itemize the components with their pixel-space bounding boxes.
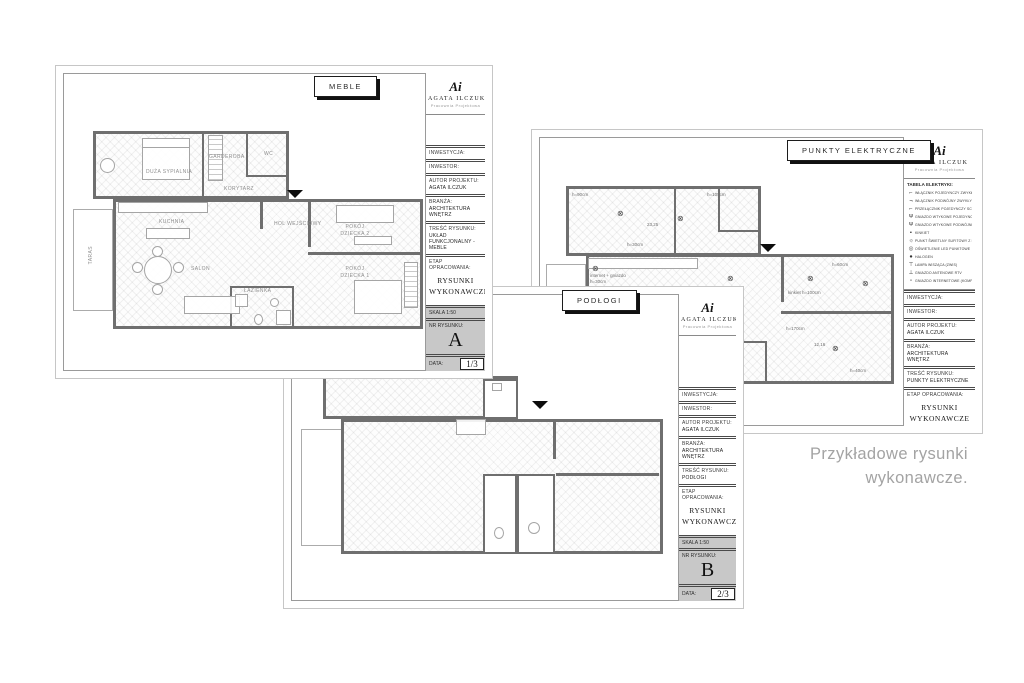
page-number: 2/3 bbox=[711, 588, 735, 600]
field-value: PODŁOGI bbox=[682, 475, 733, 481]
led-spot-icon: ◎ bbox=[907, 246, 915, 252]
room-label: KORYTARZ bbox=[224, 186, 254, 192]
chair-furniture bbox=[173, 262, 184, 273]
field-value: UKŁAD FUNKCJONALNY - MEBLE bbox=[429, 233, 482, 251]
field-label: TREŚĆ RYSUNKU: bbox=[907, 371, 972, 377]
legend-label: GNIAZDO WTYKOWE PODWÓJNE bbox=[915, 223, 972, 227]
field-label: ETAP OPRACOWANIA: bbox=[429, 259, 482, 271]
elec-annotation: h=105cm bbox=[707, 192, 726, 197]
legend-title: TABELA ELEKTRYKI: bbox=[907, 182, 972, 187]
electrical-legend: TABELA ELEKTRYKI: ⌐WŁĄCZNIK POJEDYNCZY Z… bbox=[904, 179, 975, 290]
field-value: AGATA ILCZUK bbox=[429, 185, 482, 191]
field-tresc: TREŚĆ RYSUNKU:PUNKTY ELEKTRYCZNE bbox=[904, 366, 975, 387]
portfolio-page: PUNKTY ELEKTRYCZNE ⊗ ⊗ ⊗ ⊗ ⊗ ⊗ ⊗ ⊗ ⊗ bbox=[0, 0, 1024, 683]
brand-logo: Ai AGATA ILCZUK Pracownia Projektowa bbox=[679, 294, 736, 336]
sheet-c-titleblock: Ai AGATA ILCZUK Pracownia Projektowa TAB… bbox=[903, 137, 975, 426]
field-label: BRANŻA: bbox=[682, 441, 733, 447]
brand-name: AGATA ILCZUK bbox=[681, 317, 734, 323]
brand-logo: Ai AGATA ILCZUK Pracownia Projektowa bbox=[426, 73, 485, 115]
room-label: DUŻA SYPIALNIA bbox=[146, 169, 192, 175]
internet-socket-icon: ▫ bbox=[907, 278, 915, 284]
field-label: AUTOR PROJEKTU: bbox=[907, 323, 972, 329]
field-skala: SKALA 1:50 bbox=[426, 305, 485, 318]
legend-row: ▫GNIAZDO INTERNETOWE (KOMPUTEROWE) bbox=[907, 277, 972, 285]
sheet-c-title-tab: PUNKTY ELEKTRYCZNE bbox=[787, 140, 931, 161]
field-skala: SKALA 1:50 bbox=[679, 535, 736, 548]
drawing-number: A bbox=[429, 329, 482, 352]
bed-furniture bbox=[336, 205, 394, 223]
brand-tagline: Pracownia Projektowa bbox=[906, 167, 973, 172]
room-label: WC bbox=[264, 151, 273, 157]
elec-annotation: internet + gniazdo h=30cm bbox=[590, 273, 632, 285]
sofa-furniture bbox=[184, 296, 240, 314]
field-inwestor: INWESTOR: bbox=[426, 159, 485, 173]
field-label: AUTOR PROJEKTU: bbox=[429, 178, 482, 184]
field-etap: ETAP OPRACOWANIA: RYSUNKI WYKONAWCZE bbox=[679, 484, 736, 536]
washer-fixture bbox=[235, 294, 248, 307]
field-label: INWESTYCJA: bbox=[907, 295, 972, 301]
field-branza: BRANŻA:ARCHITEKTURA WNĘTRZ bbox=[679, 436, 736, 463]
legend-row: ⌐PRZEŁĄCZNIK POJEDYNCZY SCHODOWY bbox=[907, 205, 972, 213]
wall bbox=[246, 175, 289, 177]
wall bbox=[556, 473, 659, 476]
room-label: HOL WEJŚCIOWY bbox=[274, 221, 322, 227]
legend-label: GNIAZDO ANTENOWE RTV bbox=[915, 271, 962, 275]
legend-label: GNIAZDO WTYKOWE POJEDYNCZE bbox=[915, 215, 972, 219]
field-autor: AUTOR PROJEKTU:AGATA ILCZUK bbox=[904, 318, 975, 339]
room-label: POKÓJ DZIECKA 1 bbox=[339, 266, 371, 280]
sheet-c-title: PUNKTY ELEKTRYCZNE bbox=[802, 146, 916, 155]
field-label: INWESTYCJA: bbox=[429, 150, 482, 156]
legend-label: GNIAZDO INTERNETOWE (KOMPUTEROWE) bbox=[915, 279, 972, 283]
shower-fixture bbox=[276, 310, 291, 325]
plan-c-upper-block bbox=[566, 186, 761, 256]
plan-b-hall-room bbox=[517, 474, 555, 554]
field-value: PUNKTY ELEKTRYCZNE bbox=[907, 378, 972, 384]
double-switch-icon: ¬ bbox=[907, 198, 915, 204]
elec-annotation: h=60cm bbox=[832, 262, 848, 267]
sheet-b-title-tab: PODŁOGI bbox=[562, 290, 637, 311]
sheet-a-title-tab: MEBLE bbox=[314, 76, 377, 97]
field-label: TREŚĆ RYSUNKU: bbox=[429, 226, 482, 232]
field-label: TREŚĆ RYSUNKU: bbox=[682, 468, 733, 474]
sink-fixture bbox=[492, 383, 502, 391]
field-value: ARCHITEKTURA WNĘTRZ bbox=[907, 351, 972, 363]
ceiling-light-icon: ⊗ bbox=[832, 345, 839, 353]
bed-pillows bbox=[142, 138, 190, 148]
legend-label: WŁĄCZNIK POJEDYNCZY ZWYKŁY bbox=[915, 191, 972, 195]
kitchen-counter bbox=[588, 258, 698, 269]
field-autor: AUTOR PROJEKTU:AGATA ILCZUK bbox=[679, 415, 736, 436]
legend-row: ΨGNIAZDO WTYKOWE POJEDYNCZE bbox=[907, 213, 972, 221]
bed-furniture bbox=[354, 280, 402, 314]
legend-row: ⊥GNIAZDO ANTENOWE RTV bbox=[907, 269, 972, 277]
caption: Przykładowe rysunki wykonawcze. bbox=[810, 443, 968, 491]
kitchen-counter bbox=[456, 419, 486, 435]
field-label: ETAP OPRACOWANIA: bbox=[682, 489, 733, 501]
elec-annotation: 12,16 bbox=[814, 342, 825, 347]
scale-value: SKALA 1:50 bbox=[682, 540, 733, 546]
ceiling-light-icon: ⊗ bbox=[807, 275, 814, 283]
socket-single-icon: Ψ bbox=[907, 214, 915, 220]
field-tresc: TREŚĆ RYSUNKU:PODŁOGI bbox=[679, 463, 736, 484]
field-inwestycja: INWESTYCJA: bbox=[904, 290, 975, 304]
ceiling-light-icon: ⊗ bbox=[677, 215, 684, 223]
elec-annotation: kinkiet h=100cm bbox=[788, 290, 821, 295]
stage-value: RYSUNKI WYKONAWCZE bbox=[907, 402, 972, 425]
ceiling-light-icon: ☼ bbox=[907, 238, 915, 244]
stage-value: RYSUNKI WYKONAWCZE bbox=[682, 505, 733, 528]
field-branza: BRANŻA:ARCHITEKTURA WNĘTRZ bbox=[426, 194, 485, 221]
page-number: 1/3 bbox=[460, 358, 484, 370]
caption-line-1: Przykładowe rysunki bbox=[810, 443, 968, 467]
field-inwestycja: INWESTYCJA: bbox=[679, 387, 736, 401]
field-branza: BRANŻA:ARCHITEKTURA WNĘTRZ bbox=[904, 339, 975, 366]
stage-value: RYSUNKI WYKONAWCZE bbox=[429, 275, 482, 298]
field-label: ETAP OPRACOWANIA: bbox=[907, 392, 972, 398]
field-label: INWESTOR: bbox=[682, 406, 733, 412]
date-label: DATA: bbox=[679, 587, 710, 601]
room-label: ŁAZIENKA bbox=[244, 288, 271, 294]
entrance-arrow-icon bbox=[287, 190, 303, 198]
chair-furniture bbox=[152, 284, 163, 295]
field-value: AGATA ILCZUK bbox=[682, 427, 733, 433]
plan-a-upper-block bbox=[93, 131, 289, 199]
toilet-fixture bbox=[494, 527, 504, 539]
pendant-lamp-icon: ⊤ bbox=[907, 262, 915, 268]
drawing-number: B bbox=[682, 559, 733, 582]
entrance-arrow-icon bbox=[532, 401, 548, 409]
elec-annotation: h=30cm bbox=[627, 242, 643, 247]
sheet-a-meble: MEBLE bbox=[55, 65, 493, 379]
field-nr-rysunku: NR RYSUNKU: B bbox=[679, 548, 736, 584]
field-data: DATA: 1/3 bbox=[426, 354, 485, 371]
legend-row: ⊤LAMPA WISZĄCA (ZWIS) bbox=[907, 261, 972, 269]
ceiling-light-icon: ⊗ bbox=[727, 275, 734, 283]
single-switch-icon: ⌐ bbox=[907, 190, 915, 196]
legend-row: ◎OŚWIETLENIE LED PUNKTOWE bbox=[907, 245, 972, 253]
field-data: DATA: 2/3 bbox=[679, 584, 736, 601]
field-label: BRANŻA: bbox=[429, 199, 482, 205]
field-label: BRANŻA: bbox=[907, 344, 972, 350]
brand-monogram-icon: Ai bbox=[681, 301, 734, 314]
field-etap: ETAP OPRACOWANIA: RYSUNKI WYKONAWCZE bbox=[426, 254, 485, 306]
legend-label: KINKIET bbox=[915, 231, 929, 235]
sink-fixture bbox=[270, 298, 279, 307]
room-label: POKÓJ DZIECKA 2 bbox=[339, 224, 371, 238]
plan-b-bath-room bbox=[483, 474, 517, 554]
ceiling-light-icon: ⊗ bbox=[617, 210, 624, 218]
field-etap: ETAP OPRACOWANIA: RYSUNKI WYKONAWCZE bbox=[904, 387, 975, 426]
sheet-b-titleblock: Ai AGATA ILCZUK Pracownia Projektowa INW… bbox=[678, 294, 736, 601]
wall bbox=[718, 230, 761, 232]
toilet-fixture bbox=[254, 314, 263, 325]
legend-label: WŁĄCZNIK PODWÓJNY ZWYKŁY bbox=[915, 199, 972, 203]
rtv-socket-icon: ⊥ bbox=[907, 270, 915, 276]
chair-furniture bbox=[132, 262, 143, 273]
elec-annotation: h=40cm bbox=[850, 368, 866, 373]
kitchen-island bbox=[146, 228, 190, 239]
chair-furniture bbox=[152, 246, 163, 257]
field-value: ARCHITEKTURA WNĘTRZ bbox=[682, 448, 733, 460]
legend-row: ●HALOGEN bbox=[907, 253, 972, 261]
field-tresc: TREŚĆ RYSUNKU:UKŁAD FUNKCJONALNY - MEBLE bbox=[426, 221, 485, 254]
sheet-a-titleblock: Ai AGATA ILCZUK Pracownia Projektowa INW… bbox=[425, 73, 485, 371]
wall-lamp-icon: ▪ bbox=[907, 230, 915, 236]
elec-annotation: 23,25 bbox=[647, 222, 658, 227]
wall bbox=[202, 133, 204, 197]
sheet-a-title: MEBLE bbox=[329, 82, 362, 91]
halogen-icon: ● bbox=[907, 254, 915, 260]
room-label: GARDEROBA bbox=[209, 154, 245, 160]
dining-table bbox=[144, 256, 172, 284]
wall bbox=[292, 286, 294, 327]
stair-switch-icon: ⌐ bbox=[907, 206, 915, 212]
legend-row: ☼PUNKT ŚWIETLNY SUFITOWY Z LAMPĄ bbox=[907, 237, 972, 245]
socket-double-icon: Ψ bbox=[907, 222, 915, 228]
field-label: INWESTYCJA: bbox=[682, 392, 733, 398]
sheet-b-title: PODŁOGI bbox=[577, 296, 622, 305]
elec-annotation: h=90cm bbox=[572, 192, 588, 197]
legend-row: ΨGNIAZDO WTYKOWE PODWÓJNE bbox=[907, 221, 972, 229]
terrace-outline bbox=[301, 429, 343, 546]
legend-row: ▪KINKIET bbox=[907, 229, 972, 237]
legend-row: ¬WŁĄCZNIK PODWÓJNY ZWYKŁY bbox=[907, 197, 972, 205]
wall bbox=[308, 252, 421, 255]
wall bbox=[260, 201, 263, 229]
wall bbox=[674, 188, 676, 254]
wall bbox=[246, 133, 248, 177]
wall bbox=[553, 419, 556, 459]
field-label: INWESTOR: bbox=[429, 164, 482, 170]
ceiling-light-icon: ⊗ bbox=[592, 265, 599, 273]
legend-label: OŚWIETLENIE LED PUNKTOWE bbox=[915, 247, 970, 251]
legend-label: PUNKT ŚWIETLNY SUFITOWY Z LAMPĄ bbox=[915, 239, 972, 243]
legend-label: LAMPA WISZĄCA (ZWIS) bbox=[915, 263, 957, 267]
brand-tagline: Pracownia Projektowa bbox=[681, 324, 734, 329]
legend-row: ⌐WŁĄCZNIK POJEDYNCZY ZWYKŁY bbox=[907, 189, 972, 197]
room-label: KUCHNIA bbox=[159, 219, 184, 225]
field-label: AUTOR PROJEKTU: bbox=[682, 420, 733, 426]
sink-fixture bbox=[528, 522, 540, 534]
caption-line-2: wykonawcze. bbox=[810, 467, 968, 491]
field-inwestor: INWESTOR: bbox=[904, 304, 975, 318]
legend-label: HALOGEN bbox=[915, 255, 933, 259]
field-inwestor: INWESTOR: bbox=[679, 401, 736, 415]
wardrobe-furniture bbox=[404, 262, 418, 308]
wall bbox=[781, 311, 894, 314]
kitchen-counter bbox=[118, 202, 208, 213]
field-nr-rysunku: NR RYSUNKU: A bbox=[426, 318, 485, 354]
entrance-arrow-icon bbox=[760, 244, 776, 252]
field-value: AGATA ILCZUK bbox=[907, 330, 972, 336]
armchair-furniture bbox=[100, 158, 115, 173]
field-autor: AUTOR PROJEKTU:AGATA ILCZUK bbox=[426, 173, 485, 194]
scale-value: SKALA 1:50 bbox=[429, 310, 482, 316]
field-inwestycja: INWESTYCJA: bbox=[426, 145, 485, 159]
brand-name: AGATA ILCZUK bbox=[428, 96, 483, 102]
room-label: TARAS bbox=[88, 246, 94, 264]
legend-label: PRZEŁĄCZNIK POJEDYNCZY SCHODOWY bbox=[915, 207, 972, 211]
brand-tagline: Pracownia Projektowa bbox=[428, 103, 483, 108]
field-value: ARCHITEKTURA WNĘTRZ bbox=[429, 206, 482, 218]
ceiling-light-icon: ⊗ bbox=[862, 280, 869, 288]
date-label: DATA: bbox=[426, 357, 459, 371]
room-label: SALON bbox=[191, 266, 210, 272]
brand-monogram-icon: Ai bbox=[428, 80, 483, 93]
field-label: INWESTOR: bbox=[907, 309, 972, 315]
wall bbox=[781, 256, 784, 302]
wall bbox=[765, 341, 767, 382]
elec-annotation: h=170cm bbox=[786, 326, 805, 331]
